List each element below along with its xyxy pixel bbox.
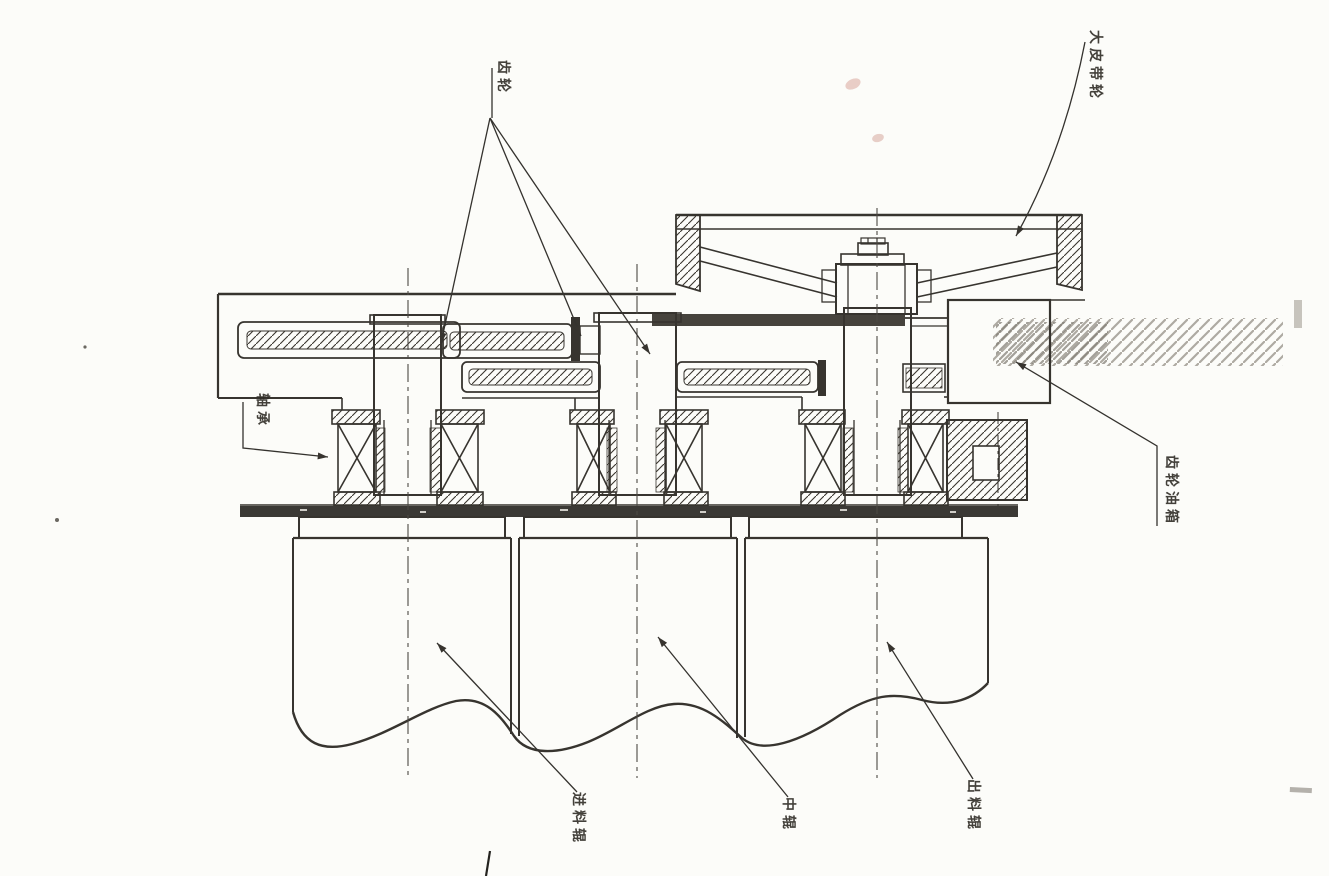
roller-2-cap	[524, 517, 731, 538]
label-bearing: 轴承	[253, 393, 273, 429]
gear-housing	[218, 294, 1085, 410]
bearing-assemblies	[332, 410, 1027, 508]
label-gear: 齿轮	[494, 60, 514, 96]
rollers	[293, 517, 988, 751]
middle-roller-leader	[658, 637, 788, 797]
scanned-technical-diagram-page: 齿轮 大皮带轮 轴承 齿轮油箱 进料辊 中辊 出料辊	[0, 0, 1329, 876]
scan-artifacts	[55, 76, 1312, 876]
machine-cross-section-drawing	[0, 0, 1329, 876]
label-big-belt-pulley: 大皮带轮	[1086, 30, 1106, 102]
gear-leader-1	[441, 118, 490, 343]
hatched-wall-band	[993, 318, 1283, 366]
label-gear-oil-box: 齿轮油箱	[1162, 455, 1182, 527]
pulley-leader	[1016, 42, 1085, 236]
label-discharge-roller: 出料辊	[964, 779, 984, 833]
pulley-left-rim	[676, 215, 700, 291]
gear-leader-3	[490, 118, 650, 354]
label-middle-roller: 中辊	[779, 797, 799, 833]
label-feed-roller: 进料辊	[569, 792, 589, 846]
feed-roller-leader	[437, 643, 577, 792]
bed-plate	[240, 505, 1018, 517]
rollers-break-wave	[293, 683, 988, 751]
hub-bolt	[858, 243, 888, 255]
discharge-roller-leader	[887, 642, 973, 779]
pulley-right-rim	[1057, 215, 1082, 290]
roller-3-cap	[749, 517, 962, 538]
oil-box-leader	[1016, 362, 1157, 526]
gear-leader-2	[490, 118, 581, 336]
pulley-web-left	[700, 247, 837, 297]
roller-1-cap	[299, 517, 505, 538]
gear-shaft-bars	[238, 317, 945, 396]
pulley-web-right	[917, 253, 1057, 297]
